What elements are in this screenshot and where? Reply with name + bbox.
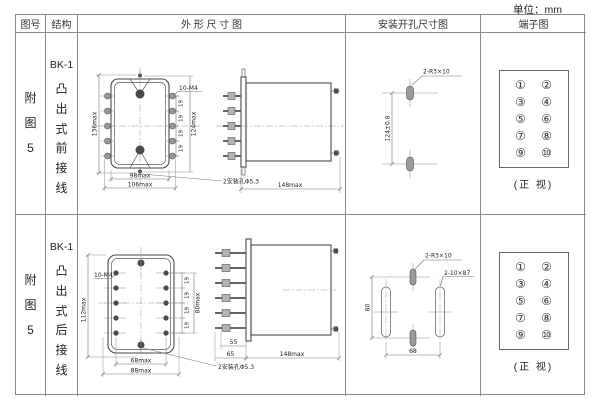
outline-cell-front-wiring: 136max 19 19 19 19 124max 10-M4: [78, 33, 346, 215]
terminal-pin-8: ⑧: [541, 129, 552, 143]
dim-width-overall: 88max: [131, 368, 152, 375]
bottom-small-slot: [410, 330, 416, 346]
label-slot-size: 2-R3×10: [423, 69, 450, 76]
cutout-drawing-rear-wiring: 80 68 2-R3×10 2-10×87: [346, 215, 481, 396]
label-long-slot-size: 2-10×87: [444, 270, 470, 277]
front-view: [98, 247, 184, 363]
header-outline-dimensions: 外 形 尺 寸 图: [78, 15, 346, 33]
terminal-pin-9: ⑨: [515, 328, 526, 342]
terminal-box: ① ② ③ ④ ⑤ ⑥ ⑦ ⑧ ⑨ ⑩: [499, 252, 569, 350]
terminal-pin-6: ⑥: [541, 112, 552, 126]
front-view-dimensions: 136max 19 19 19 19 124max 10-M4: [92, 73, 260, 191]
outline-drawing-rear-wiring: 10-M4 112max 19 19 19 19: [78, 215, 346, 396]
dim-pitch-1: 19: [185, 277, 191, 284]
side-view-dimensions: 148max: [239, 157, 342, 193]
terminal-pin-5: ⑤: [515, 112, 526, 126]
dim-pitch-3: 19: [185, 307, 191, 314]
terminal-cell-front-wiring: ① ② ③ ④ ⑤ ⑥ ⑦ ⑧ ⑨ ⑩ (正 视): [481, 33, 586, 215]
dim-pitch-3: 19: [179, 130, 185, 137]
dim-height-overall: 112max: [81, 297, 88, 322]
terminal-pin-7: ⑦: [515, 129, 526, 143]
cutout-cell-front-wiring: 124±0.8 2-R3×10: [346, 33, 481, 215]
dim-horizontal-spacing: 68: [409, 348, 417, 355]
model-label: BK-1: [50, 241, 73, 253]
wiring-type-label: 凸出式前接线: [55, 80, 68, 199]
dim-terminal-span: 80max: [195, 292, 202, 313]
bottom-slot: [407, 157, 414, 171]
terminal-pin-5: ⑤: [515, 294, 526, 308]
figure-no-cell-front-wiring: 附图5: [16, 33, 46, 215]
terminal-pin-2: ②: [541, 78, 552, 92]
wiring-type-label: 凸出式后接线: [55, 262, 68, 381]
structure-cell-front-wiring: BK-1 凸出式前接线: [46, 33, 78, 215]
datasheet-page: 单位：mm 图号 结构 外 形 尺 寸 图 安装开孔尺寸图 端子图 附图5 BK…: [0, 0, 600, 400]
label-mounting-holes: 2安装孔Φ5.3: [218, 363, 254, 371]
dim-pitch-1: 19: [179, 100, 185, 107]
dim-width-overall: 106max: [128, 182, 153, 189]
terminal-pin-6: ⑥: [541, 294, 552, 308]
terminal-pin-4: ④: [541, 95, 552, 109]
header-mounting-cutout: 安装开孔尺寸图: [346, 15, 481, 33]
outline-cell-rear-wiring: 10-M4 112max 19 19 19 19: [78, 215, 346, 396]
dimension-table: 图号 结构 外 形 尺 寸 图 安装开孔尺寸图 端子图 附图5 BK-1 凸出式…: [15, 14, 585, 395]
header-terminal-diagram: 端子图: [481, 15, 586, 33]
dim-pitch-4: 19: [179, 145, 185, 152]
dim-vertical-spacing: 80: [365, 304, 372, 312]
dim-height-overall: 136max: [92, 111, 99, 136]
dim-hole-spacing: 124±0.8: [385, 115, 392, 141]
dim-depth: 148max: [280, 351, 305, 358]
dim-depth: 148max: [278, 182, 303, 189]
terminal-pin-3: ③: [515, 277, 526, 291]
header-figure-no: 图号: [16, 15, 46, 33]
terminal-pin-1: ①: [515, 78, 526, 92]
terminal-pin-9: ⑨: [515, 146, 526, 160]
outline-drawing-front-wiring: 136max 19 19 19 19 124max 10-M4: [78, 33, 346, 215]
top-slot: [407, 86, 414, 100]
terminal-pin-10: ⑩: [541, 328, 552, 342]
terminal-pin-3: ③: [515, 95, 526, 109]
dim-width-terminals: 68max: [131, 358, 152, 365]
terminal-caption: (正 视): [481, 176, 586, 191]
terminal-caption: (正 视): [481, 358, 586, 373]
terminal-box: ① ② ③ ④ ⑤ ⑥ ⑦ ⑧ ⑨ ⑩: [499, 70, 569, 168]
dim-pitch-4: 19: [185, 322, 191, 329]
top-small-slot: [410, 269, 416, 285]
dim-pitch-2: 19: [185, 292, 191, 299]
terminal-pin-7: ⑦: [515, 311, 526, 325]
cutout-cell-rear-wiring: 80 68 2-R3×10 2-10×87: [346, 215, 481, 396]
side-view: [216, 69, 344, 175]
structure-cell-rear-wiring: BK-1 凸出式后接线: [46, 215, 78, 396]
terminal-pin-4: ④: [541, 277, 552, 291]
model-label: BK-1: [50, 59, 73, 71]
figure-no-text: 附图5: [24, 86, 37, 162]
label-thread: 10-M4: [94, 272, 113, 279]
terminal-pin-10: ⑩: [541, 146, 552, 160]
terminal-pin-2: ②: [541, 260, 552, 274]
label-thread: 10-M4: [179, 85, 198, 92]
side-view: [215, 239, 339, 341]
terminal-pin-1: ①: [515, 260, 526, 274]
figure-no-text: 附图5: [24, 268, 37, 344]
side-view-dimensions: 55 65 148max: [215, 332, 341, 361]
dim-terminal-span: 124max: [191, 111, 198, 136]
cutout-drawing-front-wiring: 124±0.8 2-R3×10: [346, 33, 481, 215]
dim-width-body: 98max: [130, 173, 151, 180]
dim-stud-length: 55: [230, 339, 238, 346]
dim-base: 65: [227, 351, 235, 358]
terminal-cell-rear-wiring: ① ② ③ ④ ⑤ ⑥ ⑦ ⑧ ⑨ ⑩ (正 视): [481, 215, 586, 396]
dim-pitch-2: 19: [179, 115, 185, 122]
terminal-pin-8: ⑧: [541, 311, 552, 325]
figure-no-cell-rear-wiring: 附图5: [16, 215, 46, 396]
header-structure: 结构: [46, 15, 78, 33]
label-small-slot-size: 2-R3×10: [425, 253, 452, 260]
